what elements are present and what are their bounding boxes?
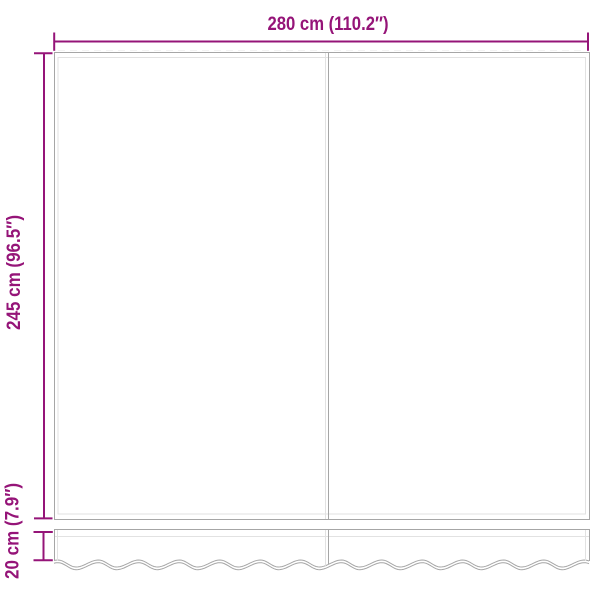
svg-text:245 cm (96.5″): 245 cm (96.5″) [4,215,25,330]
svg-text:20 cm (7.9″): 20 cm (7.9″) [3,483,24,579]
svg-text:280 cm (110.2″): 280 cm (110.2″) [268,14,389,35]
